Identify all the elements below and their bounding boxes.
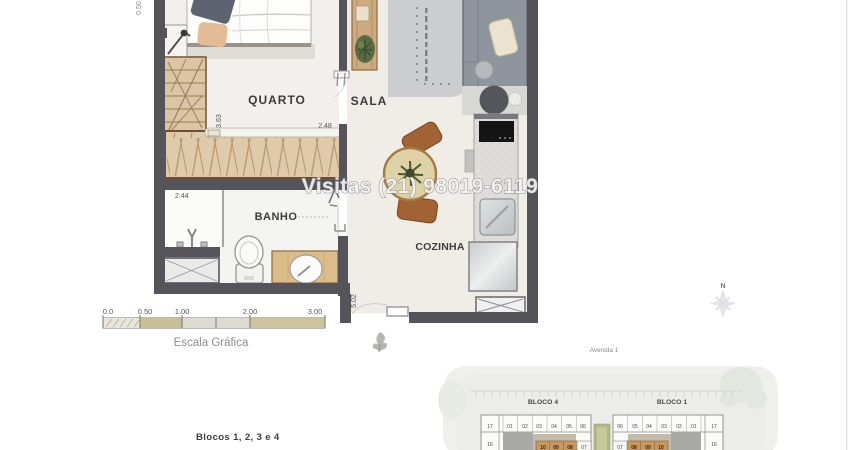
svg-text:17: 17: [711, 424, 717, 430]
svg-text:QUARTO: QUARTO: [248, 93, 306, 107]
svg-text:0.50: 0.50: [136, 1, 143, 15]
svg-text:3.63: 3.63: [216, 114, 223, 128]
svg-text:0.50: 0.50: [138, 307, 153, 316]
svg-text:06: 06: [617, 424, 623, 430]
svg-text:2.48: 2.48: [318, 123, 332, 130]
svg-text:5.02: 5.02: [351, 294, 358, 308]
svg-text:N: N: [720, 283, 725, 290]
svg-text:01: 01: [507, 424, 513, 430]
svg-text:16: 16: [487, 442, 493, 448]
svg-text:07: 07: [617, 445, 623, 450]
svg-text:Avenida 1: Avenida 1: [590, 347, 619, 354]
svg-text:03: 03: [536, 424, 542, 430]
svg-text:3.00: 3.00: [308, 307, 323, 316]
svg-text:02: 02: [676, 424, 682, 430]
svg-text:03: 03: [661, 424, 667, 430]
svg-text:04: 04: [646, 424, 652, 430]
svg-text:2.44: 2.44: [175, 193, 189, 200]
svg-text:10: 10: [540, 445, 546, 450]
svg-text:COZINHA: COZINHA: [415, 241, 464, 253]
svg-text:2.00: 2.00: [243, 307, 258, 316]
svg-text:08: 08: [567, 445, 573, 450]
svg-text:10: 10: [658, 445, 664, 450]
svg-text:07: 07: [581, 445, 587, 450]
svg-text:SALA: SALA: [351, 94, 388, 108]
svg-text:BLOCO 1: BLOCO 1: [657, 399, 687, 406]
svg-text:01: 01: [691, 424, 697, 430]
svg-text:0.0: 0.0: [103, 307, 113, 316]
svg-text:Escala Gráfica: Escala Gráfica: [174, 337, 249, 349]
svg-text:17: 17: [487, 424, 493, 430]
svg-text:09: 09: [645, 445, 651, 450]
svg-text:06: 06: [580, 424, 586, 430]
svg-text:02: 02: [522, 424, 528, 430]
svg-text:Blocos 1, 2, 3 e 4: Blocos 1, 2, 3 e 4: [196, 432, 280, 443]
svg-text:08: 08: [631, 445, 637, 450]
svg-text:16: 16: [711, 442, 717, 448]
svg-text:BANHO: BANHO: [255, 211, 298, 223]
svg-text:09: 09: [553, 445, 559, 450]
svg-text:1.00: 1.00: [175, 307, 190, 316]
svg-text:Visitas (21) 98019-6119: Visitas (21) 98019-6119: [302, 175, 539, 198]
svg-text:BLOCO 4: BLOCO 4: [528, 399, 558, 406]
svg-text:05: 05: [566, 424, 572, 430]
svg-text:04: 04: [551, 424, 557, 430]
svg-text:05: 05: [632, 424, 638, 430]
